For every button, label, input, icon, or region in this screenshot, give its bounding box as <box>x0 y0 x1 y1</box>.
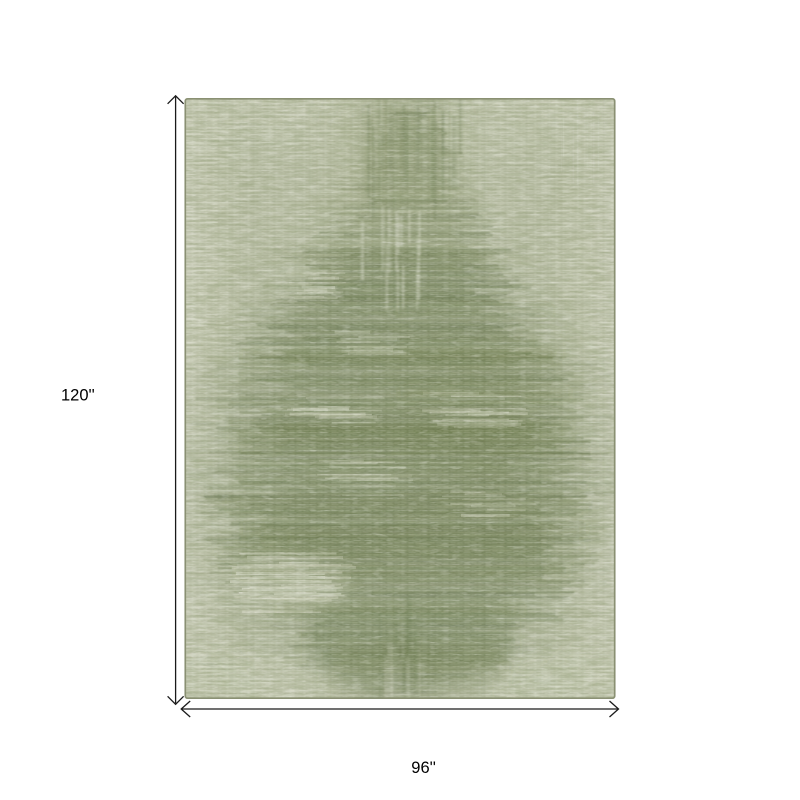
svg-text:96'': 96'' <box>411 759 436 777</box>
svg-text:120'': 120'' <box>61 387 95 405</box>
